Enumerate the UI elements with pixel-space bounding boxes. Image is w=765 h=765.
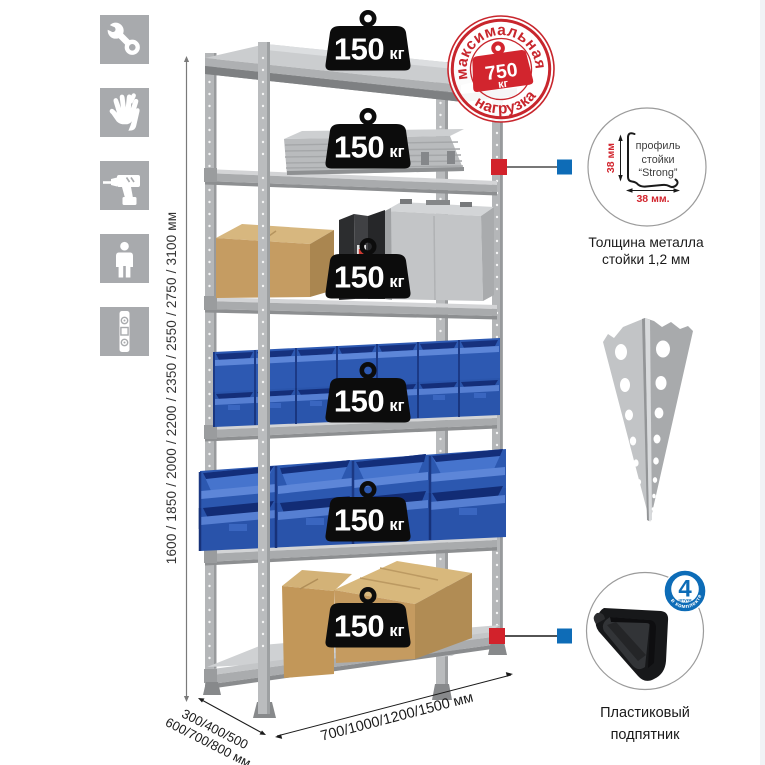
svg-text:Толщина металла: Толщина металла	[588, 235, 704, 250]
svg-text:подпятник: подпятник	[611, 727, 681, 743]
svg-text:штуки: штуки	[679, 598, 692, 603]
svg-text:“Strong”: “Strong”	[638, 167, 677, 179]
svg-text:Пластиковый: Пластиковый	[600, 705, 690, 721]
svg-text:38 мм: 38 мм	[605, 143, 617, 173]
svg-text:кг: кг	[497, 78, 509, 91]
svg-text:профиль: профиль	[636, 140, 681, 152]
svg-text:38 мм.: 38 мм.	[636, 193, 669, 205]
svg-text:1600 / 1850 / 2000 / 2200 / 23: 1600 / 1850 / 2000 / 2200 / 2350 / 2550 …	[164, 212, 179, 565]
svg-text:стойки: стойки	[641, 154, 674, 166]
svg-text:стойки 1,2 мм: стойки 1,2 мм	[602, 252, 690, 267]
